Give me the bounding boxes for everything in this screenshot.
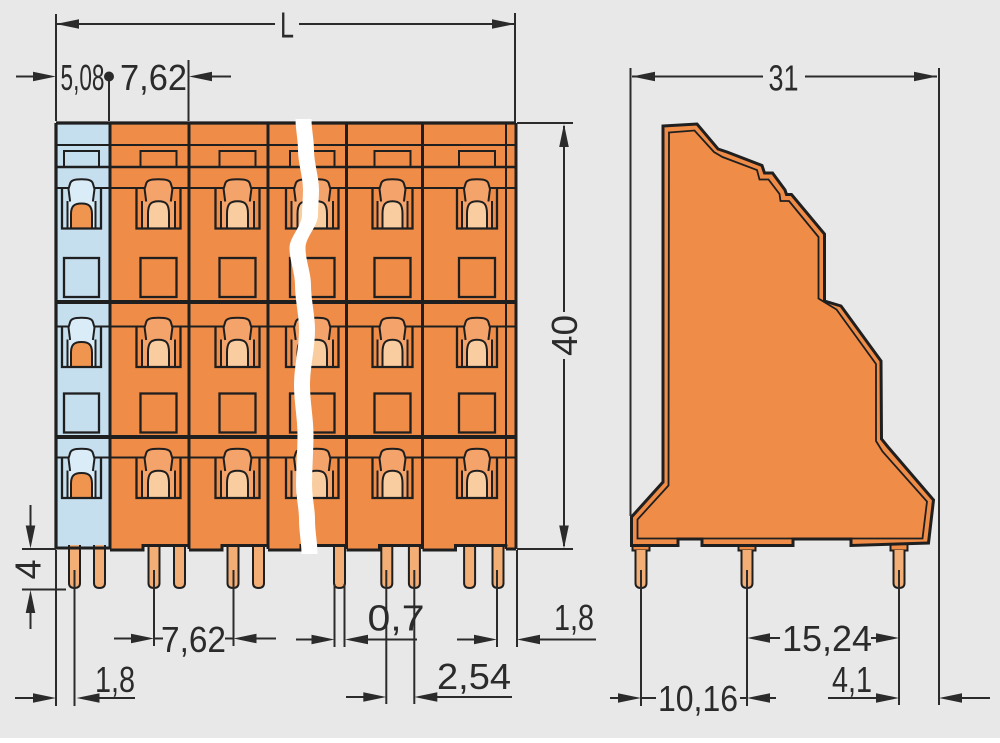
svg-text:40: 40 (544, 315, 585, 356)
svg-text:31: 31 (769, 58, 799, 99)
svg-text:7,62: 7,62 (161, 619, 226, 660)
svg-text:10,16: 10,16 (658, 678, 738, 719)
svg-text:1,8: 1,8 (95, 659, 135, 700)
svg-text:4,1: 4,1 (832, 659, 872, 700)
svg-text:2,54: 2,54 (437, 656, 511, 697)
svg-text:1,8: 1,8 (554, 597, 594, 638)
svg-text:0,7: 0,7 (368, 598, 425, 639)
svg-text:7,62: 7,62 (120, 57, 187, 98)
svg-text:L: L (280, 5, 294, 46)
svg-text:5,08: 5,08 (61, 57, 105, 98)
svg-text:4: 4 (8, 560, 49, 580)
svg-text:15,24: 15,24 (782, 618, 872, 659)
